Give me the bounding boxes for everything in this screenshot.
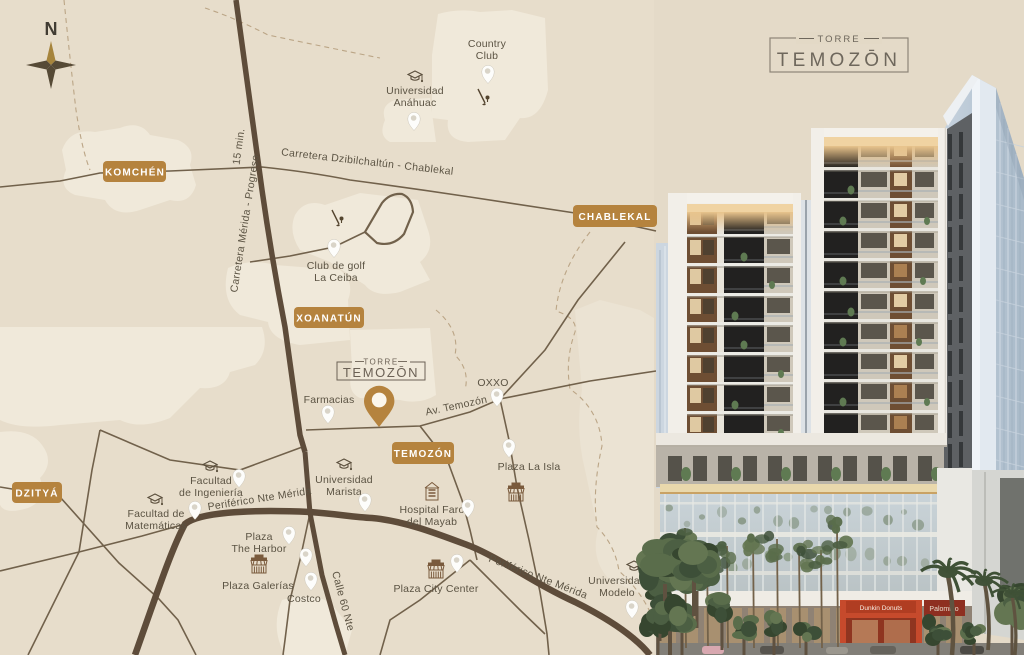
svg-text:Modelo: Modelo xyxy=(599,587,635,599)
svg-text:Costco: Costco xyxy=(287,593,321,605)
svg-text:N: N xyxy=(45,19,58,39)
svg-text:Plaza: Plaza xyxy=(245,531,272,543)
svg-text:La Ceiba: La Ceiba xyxy=(314,272,358,284)
svg-text:TORRE: TORRE xyxy=(817,34,860,45)
svg-text:Facultad de: Facultad de xyxy=(127,508,184,520)
svg-text:TEMOZŌN: TEMOZŌN xyxy=(343,365,419,380)
svg-text:CHABLEKAL: CHABLEKAL xyxy=(578,212,651,223)
svg-text:KOMCHÉN: KOMCHÉN xyxy=(105,166,165,179)
svg-text:de Ingeniería: de Ingeniería xyxy=(179,487,243,499)
svg-text:Marista: Marista xyxy=(326,486,362,498)
svg-text:Universidad: Universidad xyxy=(386,85,444,97)
svg-text:Anáhuac: Anáhuac xyxy=(394,97,437,109)
svg-text:del Mayab: del Mayab xyxy=(407,516,457,528)
svg-text:Matemáticas: Matemáticas xyxy=(125,520,187,532)
svg-text:Plaza City Center: Plaza City Center xyxy=(393,583,478,595)
svg-text:XOANATÚN: XOANATÚN xyxy=(296,312,362,325)
svg-text:Farmacias: Farmacias xyxy=(304,394,355,406)
svg-text:Universidad: Universidad xyxy=(315,474,373,486)
svg-text:DZITYÁ: DZITYÁ xyxy=(15,487,58,500)
svg-text:Facultad: Facultad xyxy=(190,475,232,487)
svg-text:Hospital Faro: Hospital Faro xyxy=(399,504,464,516)
svg-text:TEMOZÓN: TEMOZÓN xyxy=(394,447,452,460)
svg-text:Club de golf: Club de golf xyxy=(307,260,365,272)
svg-text:The Harbor: The Harbor xyxy=(231,543,286,555)
svg-text:Plaza Galerías: Plaza Galerías xyxy=(222,580,294,592)
svg-text:Universidad: Universidad xyxy=(588,575,646,587)
svg-text:Plaza La Isla: Plaza La Isla xyxy=(498,461,561,473)
svg-text:Club: Club xyxy=(476,50,498,62)
svg-text:OXXO: OXXO xyxy=(477,377,508,389)
svg-text:TEMOZŌN: TEMOZŌN xyxy=(777,50,901,71)
svg-text:Country: Country xyxy=(468,38,507,50)
svg-text:Dunkin Donuts: Dunkin Donuts xyxy=(860,605,903,612)
